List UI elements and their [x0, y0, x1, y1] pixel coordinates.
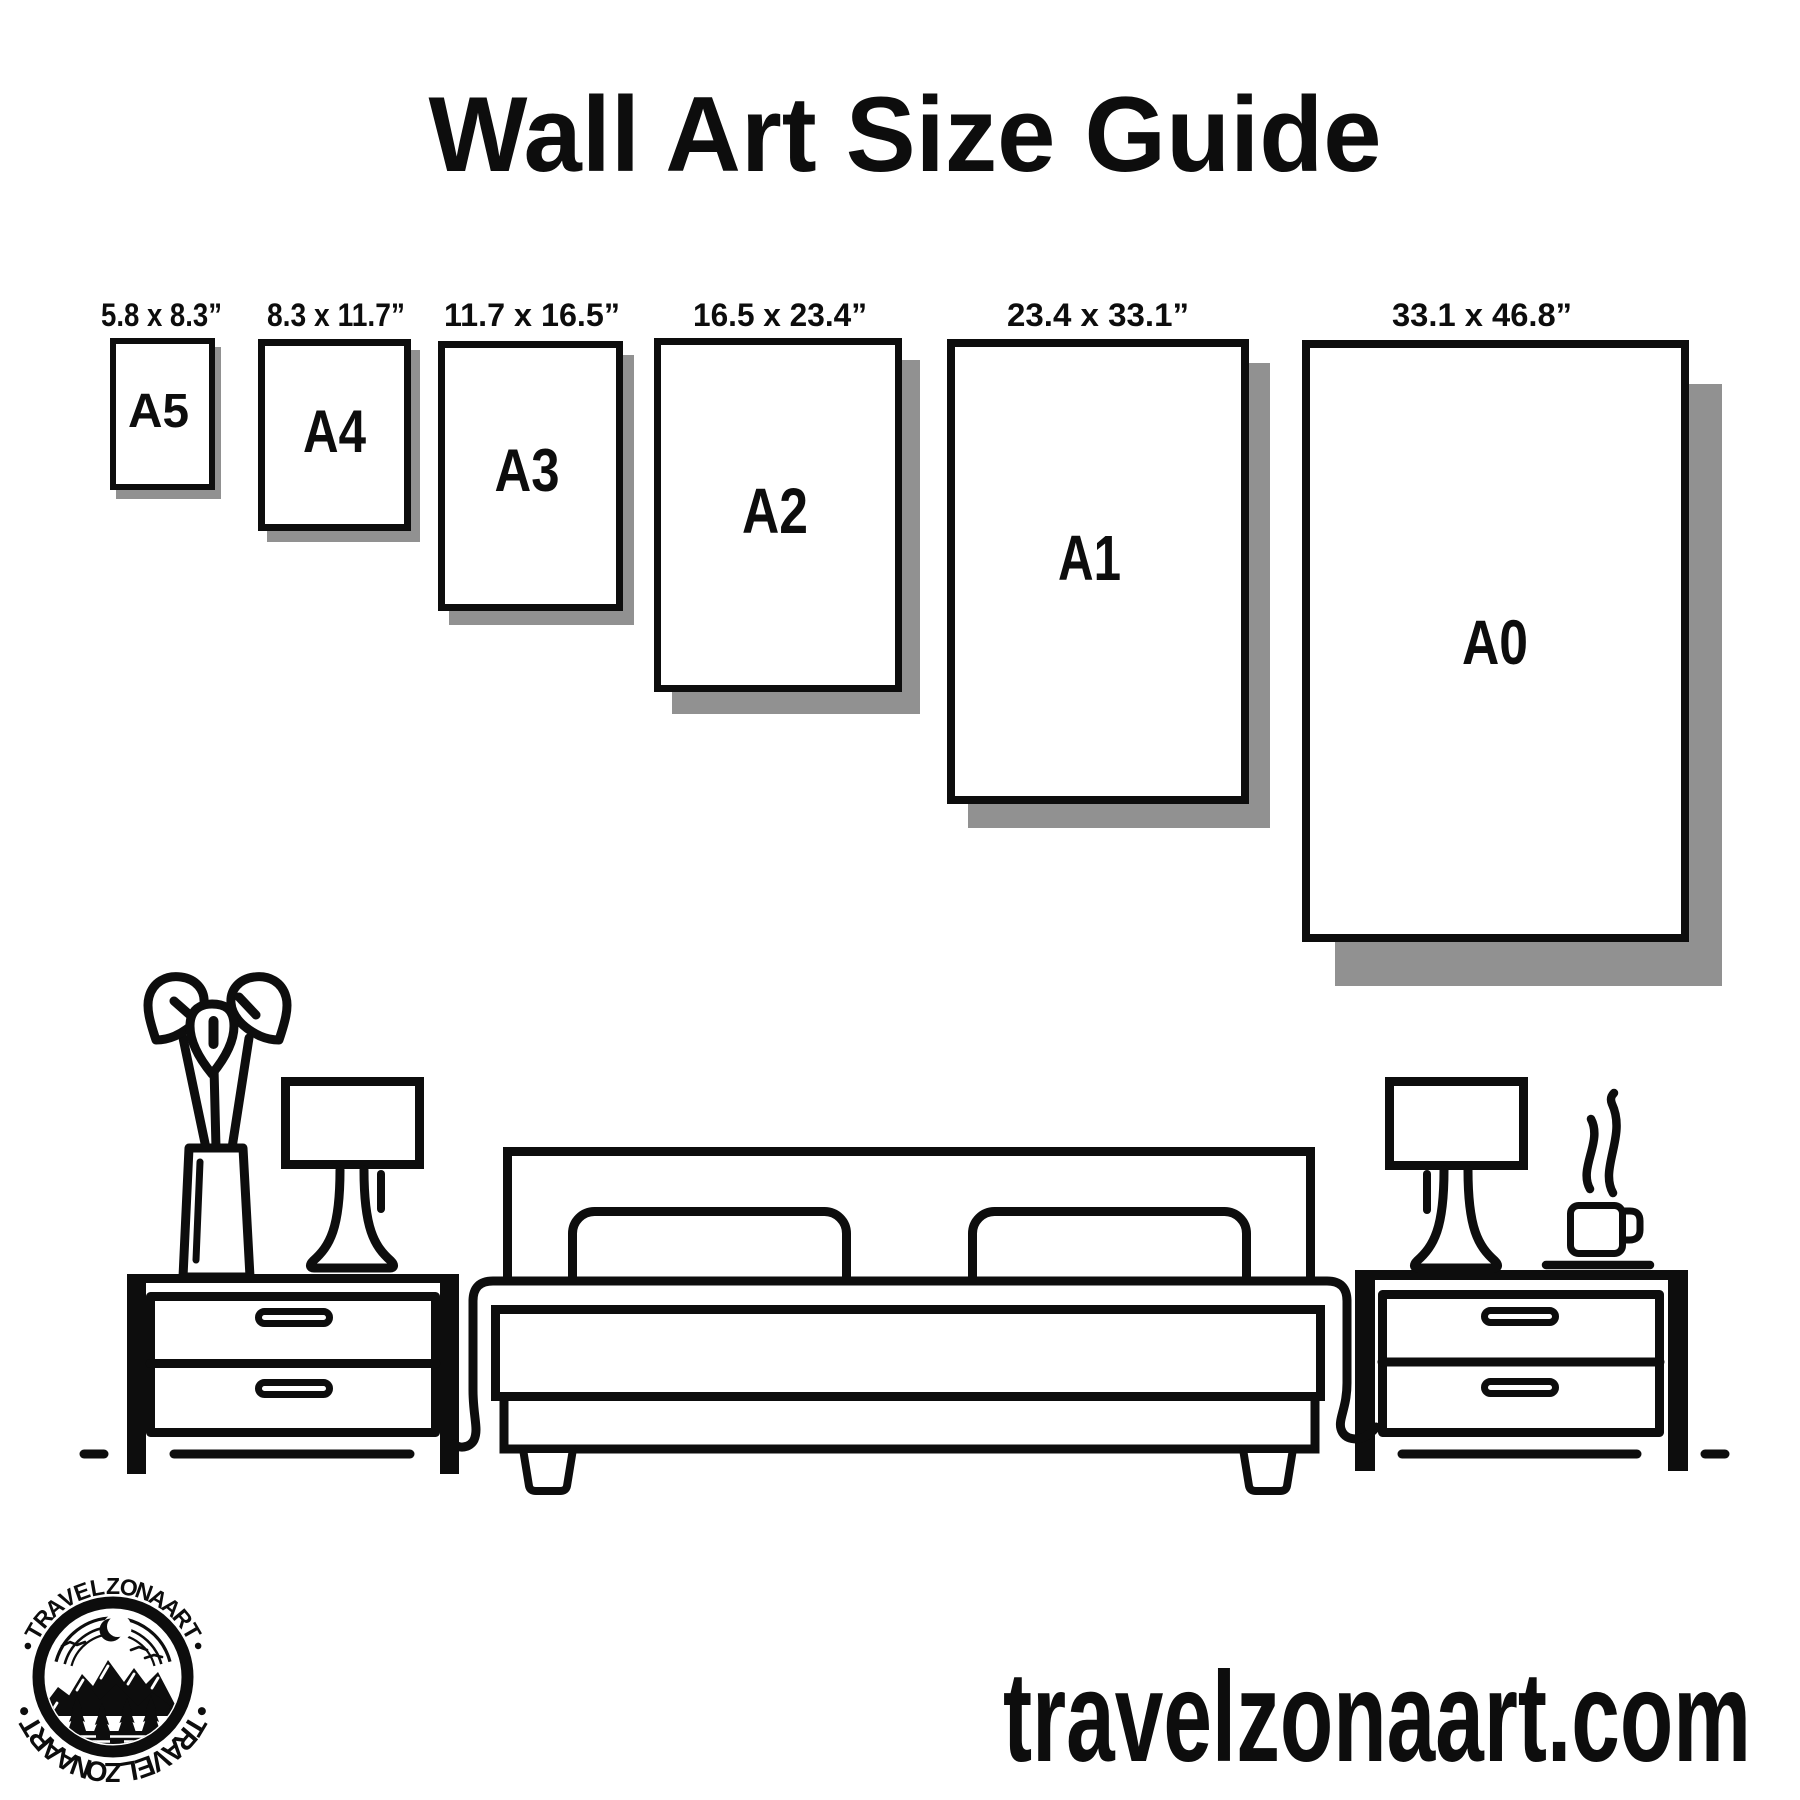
svg-text:travelzonaart.com: travelzonaart.com — [1003, 1646, 1751, 1789]
svg-text:Wall Art Size Guide: Wall Art Size Guide — [429, 74, 1382, 194]
svg-text:33.1 x 46.8”: 33.1 x 46.8” — [1392, 297, 1572, 333]
svg-text:23.4 x 33.1”: 23.4 x 33.1” — [1007, 297, 1189, 333]
svg-text:11.7 x 16.5”: 11.7 x 16.5” — [444, 297, 620, 333]
svg-text:8.3 x 11.7”: 8.3 x 11.7” — [267, 297, 405, 333]
svg-text:5.8 x 8.3”: 5.8 x 8.3” — [101, 297, 222, 333]
svg-text:A3: A3 — [495, 437, 560, 504]
svg-text:A4: A4 — [303, 398, 367, 465]
svg-text:A0: A0 — [1462, 608, 1528, 678]
svg-text:A1: A1 — [1058, 522, 1121, 594]
svg-text:A2: A2 — [742, 475, 808, 547]
svg-text:A5: A5 — [128, 385, 189, 438]
svg-text:16.5 x 23.4”: 16.5 x 23.4” — [693, 297, 867, 333]
